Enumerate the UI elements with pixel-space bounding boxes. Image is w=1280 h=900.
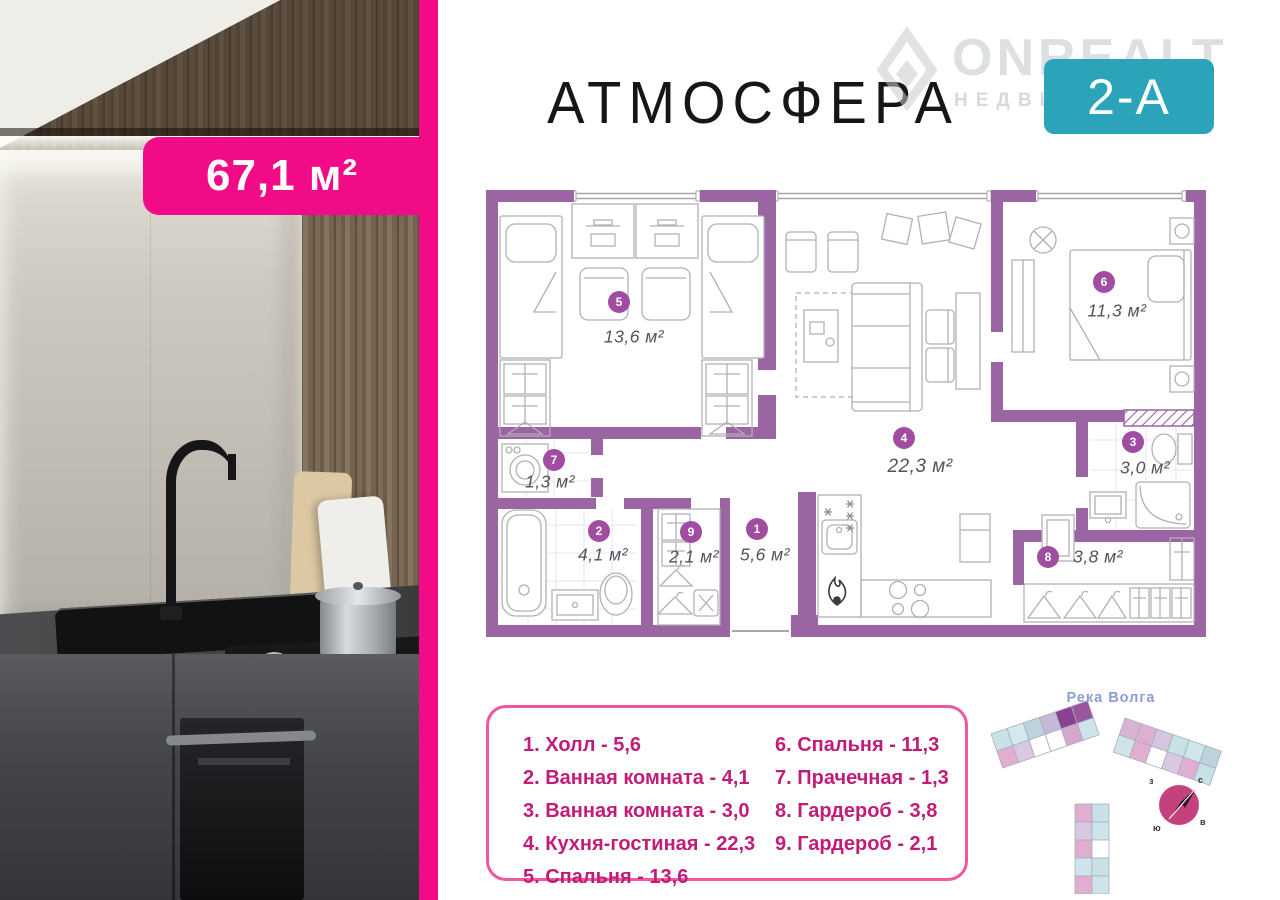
- room-number-badge: 5: [608, 291, 630, 313]
- room-area-label: 5,6 м²: [740, 545, 790, 566]
- svg-text:з: з: [1149, 776, 1154, 786]
- oven-display: [198, 758, 290, 765]
- cabinet-edge: [0, 128, 438, 136]
- legend-item: 5. Спальня - 13,6: [523, 861, 755, 894]
- floor-plan-drawing: [486, 190, 1206, 660]
- room-area-label: 3,0 м²: [1120, 458, 1170, 479]
- gas-flame-symbol: [829, 578, 846, 605]
- legend-item: 9. Гардероб - 2,1: [775, 828, 949, 861]
- room-area-label: 3,8 м²: [1073, 547, 1123, 568]
- room-number-badge: 1: [746, 518, 768, 540]
- cabinet-seam: [172, 654, 175, 900]
- room-number-badge: 3: [1122, 431, 1144, 453]
- room-area-label: 2,1 м²: [669, 547, 719, 568]
- building-wing-bottom: [1075, 804, 1109, 894]
- site-plan: Река Волга: [983, 688, 1239, 894]
- windows: [572, 191, 1186, 201]
- legend-item: 1. Холл - 5,6: [523, 729, 755, 762]
- room-number-badge: 6: [1093, 271, 1115, 293]
- room-area-label: 11,3 м²: [1088, 301, 1147, 322]
- room-area-label: 22,3 м²: [887, 456, 952, 478]
- legend-left-column: 1. Холл - 5,62. Ванная комната - 4,13. В…: [523, 729, 755, 894]
- building-site-plan: с в ю з: [983, 688, 1239, 894]
- vent-shaft-hatch: [1124, 410, 1194, 426]
- onrealt-house-icon: [868, 20, 946, 112]
- room-area-label: 1,3 м²: [525, 472, 575, 493]
- backsplash: [0, 150, 302, 618]
- room-area-label: 4,1 м²: [578, 545, 628, 566]
- accent-stripe: [419, 0, 438, 900]
- total-area-badge: 67,1 м²: [143, 137, 421, 215]
- oven: [180, 718, 304, 900]
- legend-item: 4. Кухня-гостиная - 22,3: [523, 828, 755, 861]
- room-legend: 1. Холл - 5,62. Ванная комната - 4,13. В…: [486, 705, 968, 881]
- svg-text:ю: ю: [1153, 823, 1161, 833]
- tile-seam: [150, 150, 151, 618]
- kitchen-furniture: [818, 495, 1074, 618]
- floor-plan: 15,6 м²24,1 м²33,0 м²422,3 м²513,6 м²611…: [486, 190, 1206, 660]
- legend-item: 8. Гардероб - 3,8: [775, 795, 949, 828]
- svg-text:в: в: [1200, 817, 1206, 827]
- legend-right-column: 6. Спальня - 11,37. Прачечная - 1,38. Га…: [775, 729, 949, 861]
- building-wing-right: [1113, 718, 1221, 785]
- faucet: [166, 440, 234, 612]
- bedroom5-furniture: [500, 204, 764, 436]
- cooking-pot: [320, 598, 396, 660]
- room-number-badge: 2: [588, 520, 610, 542]
- svg-text:с: с: [1198, 775, 1203, 785]
- room-area-label: 13,6 м²: [604, 327, 664, 348]
- legend-item: 7. Прачечная - 1,3: [775, 762, 949, 795]
- legend-item: 2. Ванная комната - 4,1: [523, 762, 755, 795]
- building-wing-left: [991, 701, 1099, 768]
- living-room-furniture: [786, 212, 981, 411]
- legend-item: 6. Спальня - 11,3: [775, 729, 949, 762]
- room-number-badge: 4: [893, 427, 915, 449]
- compass-icon: с в ю з: [1149, 775, 1206, 833]
- room-number-badge: 9: [680, 521, 702, 543]
- kitchen-photo: [0, 0, 438, 900]
- room-number-badge: 7: [543, 449, 565, 471]
- river-label: Река Волга: [983, 690, 1239, 706]
- unit-type-badge: 2-А: [1044, 59, 1214, 134]
- legend-item: 3. Ванная комната - 3,0: [523, 795, 755, 828]
- room-number-badge: 8: [1037, 546, 1059, 568]
